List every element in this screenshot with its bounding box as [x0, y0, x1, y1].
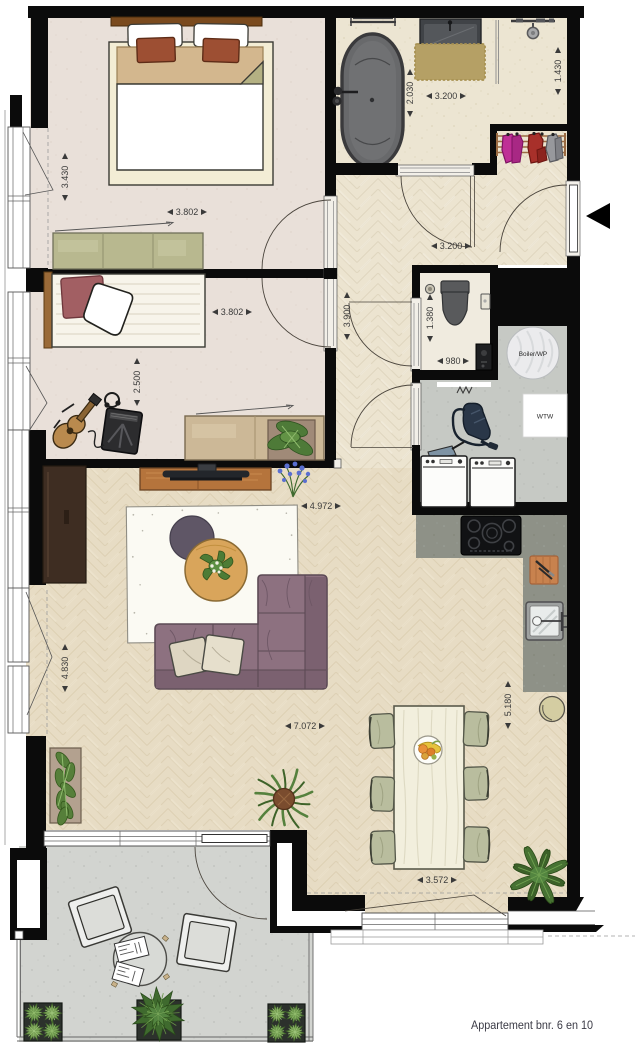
svg-text:Appartement bnr. 6 en 10: Appartement bnr. 6 en 10: [471, 1018, 593, 1032]
svg-text:3.900: 3.900: [342, 305, 352, 328]
svg-text:4.972: 4.972: [310, 501, 333, 511]
svg-text:Boiler/WP: Boiler/WP: [519, 351, 547, 358]
svg-text:5.180: 5.180: [503, 694, 513, 717]
svg-text:3.802: 3.802: [221, 307, 244, 317]
svg-text:980: 980: [445, 356, 460, 366]
svg-text:2.030: 2.030: [405, 82, 415, 105]
svg-text:WTW: WTW: [537, 414, 554, 421]
svg-text:3.200: 3.200: [440, 241, 463, 251]
svg-text:3.572: 3.572: [426, 875, 449, 885]
svg-text:3.802: 3.802: [176, 207, 199, 217]
svg-text:2.500: 2.500: [132, 371, 142, 394]
svg-text:1.380: 1.380: [425, 307, 435, 330]
svg-text:1.430: 1.430: [553, 60, 563, 83]
svg-text:3.430: 3.430: [60, 166, 70, 189]
svg-text:3.200: 3.200: [435, 91, 458, 101]
svg-text:4.830: 4.830: [60, 657, 70, 680]
svg-text:7.072: 7.072: [294, 721, 317, 731]
